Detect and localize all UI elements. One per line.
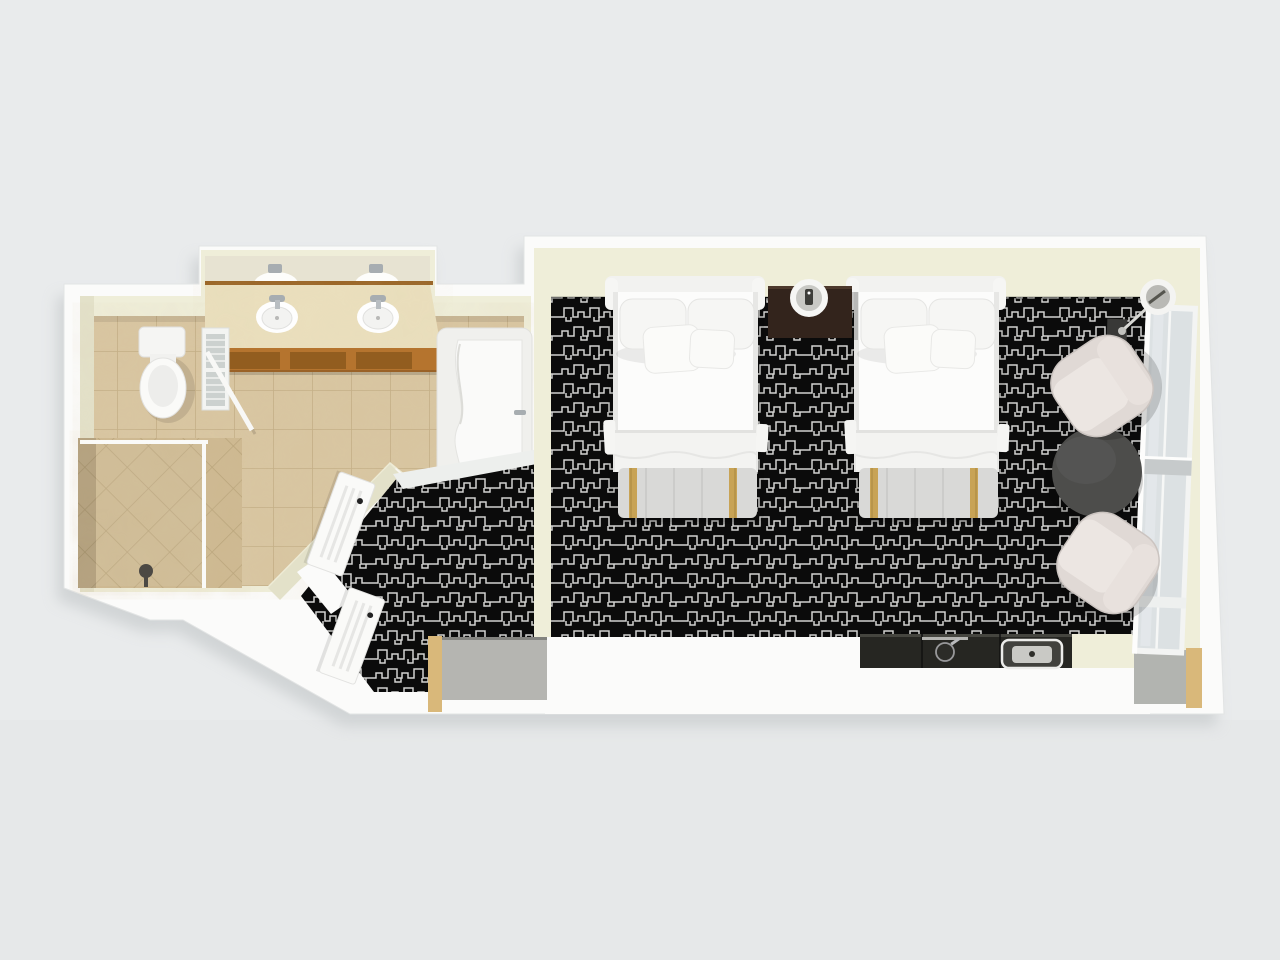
entry-alcove-floor bbox=[1134, 650, 1190, 704]
counter-highlight bbox=[922, 637, 968, 640]
walk-in-shower bbox=[78, 438, 242, 588]
vanity-top-texture bbox=[205, 285, 441, 348]
appliance-dot bbox=[1029, 651, 1035, 657]
floorplan-canvas bbox=[0, 0, 1280, 960]
cabinet-recess bbox=[356, 352, 412, 369]
shower-wall-shade bbox=[78, 438, 96, 588]
bottom-wall bbox=[545, 637, 865, 714]
kitchenette-counter bbox=[860, 634, 1072, 668]
bed-1 bbox=[603, 276, 769, 524]
faucet-spout bbox=[275, 300, 280, 309]
lamp-base bbox=[1118, 327, 1126, 335]
shower-glass-tint bbox=[96, 440, 206, 586]
shower-head bbox=[139, 564, 153, 578]
lamp-glint bbox=[808, 292, 811, 295]
nightstand bbox=[768, 282, 858, 340]
alcove-wood-panel bbox=[1186, 648, 1202, 708]
cabinet-shadow bbox=[212, 370, 438, 375]
closet-track bbox=[442, 637, 547, 640]
counter-sink bbox=[936, 643, 954, 661]
closet bbox=[442, 637, 547, 700]
background-lower bbox=[0, 720, 1280, 960]
cabinet-recess bbox=[224, 352, 280, 369]
faucet-spout bbox=[376, 300, 381, 309]
mirror-faucet-reflection bbox=[268, 264, 282, 273]
toilet-tank bbox=[139, 327, 185, 357]
bed-2 bbox=[844, 276, 1010, 524]
room-bedroom bbox=[428, 248, 1202, 714]
mirror-faucet-reflection bbox=[369, 264, 383, 273]
bottom-wall-under-counter bbox=[858, 668, 1150, 714]
lamp-body bbox=[805, 289, 813, 305]
sink-drain bbox=[376, 316, 380, 320]
sink-drain bbox=[275, 316, 279, 320]
shower-glass-side bbox=[202, 440, 206, 588]
tub-faucet bbox=[514, 410, 526, 415]
mirror-trim bbox=[205, 281, 433, 285]
shower-glass-top bbox=[80, 440, 208, 444]
double-vanity bbox=[205, 256, 441, 375]
cabinet-recess bbox=[290, 352, 346, 369]
counter-edge bbox=[860, 634, 1072, 637]
nightstand-shadow bbox=[852, 292, 858, 340]
shower-arm bbox=[144, 577, 148, 587]
toilet-lid bbox=[148, 365, 178, 407]
closet-wood-trim bbox=[428, 636, 442, 712]
table-sheen bbox=[1056, 436, 1116, 484]
